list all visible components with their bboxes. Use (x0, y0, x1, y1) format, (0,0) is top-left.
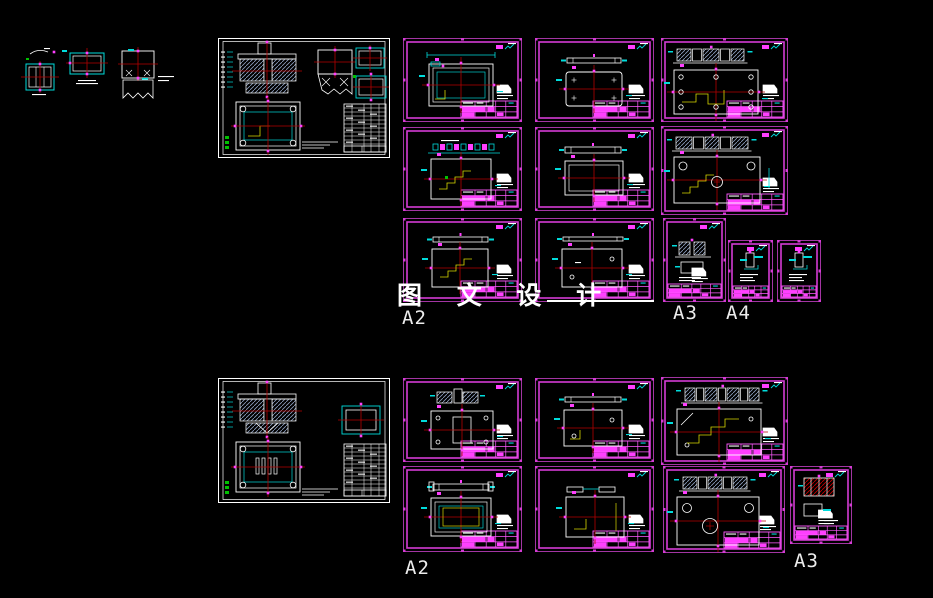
format-label-a2-top: A2 (402, 309, 427, 328)
sheet-drawing-svg (661, 38, 788, 122)
assembly-sheet-bottom[interactable] (218, 378, 390, 503)
cad-viewport[interactable]: 图 文 设 计 A2 A3 A4 A2 A3 (0, 0, 933, 598)
format-label-a4-top: A4 (726, 304, 751, 323)
part-sheet-r2c3[interactable] (661, 126, 788, 215)
format-label-a3-bottom: A3 (794, 552, 819, 571)
part-sheet-r4c2[interactable] (535, 378, 654, 462)
part-sheet-r1c1[interactable] (403, 38, 522, 122)
format-label-a2-bottom: A2 (405, 559, 430, 578)
sheet-drawing-svg (535, 378, 654, 462)
sheet-drawing-svg (663, 466, 785, 553)
sheet-drawing-svg (790, 466, 852, 544)
part-sheet-r1c2[interactable] (535, 38, 654, 122)
sheet-drawing-svg (661, 377, 788, 465)
sheet-drawing-svg (10, 40, 190, 115)
sheet-drawing-svg (728, 240, 773, 302)
watermark-underline (547, 300, 654, 302)
part-sheet-small[interactable] (790, 466, 852, 544)
sheet-drawing-svg (535, 127, 654, 211)
part-sheet-r4c1[interactable] (403, 378, 522, 462)
part-sheet-r2c2[interactable] (535, 127, 654, 211)
part-sheet-r4c3[interactable] (661, 377, 788, 465)
part-sheet-r5c3[interactable] (663, 466, 785, 553)
part-sheet-r1c3[interactable] (661, 38, 788, 122)
part-sheet-r5c1[interactable] (403, 466, 522, 552)
part-sheet-r2c1[interactable] (403, 127, 522, 211)
sheet-drawing-svg (535, 466, 654, 552)
part-sheet-a4-2[interactable] (777, 240, 821, 302)
part-sheet-r5c2[interactable] (535, 466, 654, 552)
sheet-drawing-svg (661, 126, 788, 215)
sheet-drawing-svg (403, 38, 522, 122)
part-sheet-a4-1[interactable] (728, 240, 773, 302)
sheet-drawing-svg (663, 218, 726, 302)
sheet-drawing-svg (535, 38, 654, 122)
part-sheet-a3-portrait[interactable] (663, 218, 726, 302)
sheet-drawing-svg (403, 466, 522, 552)
thumbnail-drawings[interactable] (10, 40, 190, 115)
sheet-drawing-svg (777, 240, 821, 302)
sheet-drawing-svg (403, 127, 522, 211)
sheet-drawing-svg (218, 378, 390, 503)
sheet-drawing-svg (218, 38, 390, 158)
format-label-a3-top: A3 (673, 304, 698, 323)
watermark-text: 图 文 设 计 (397, 283, 614, 308)
sheet-drawing-svg (403, 378, 522, 462)
assembly-sheet-top[interactable] (218, 38, 390, 158)
